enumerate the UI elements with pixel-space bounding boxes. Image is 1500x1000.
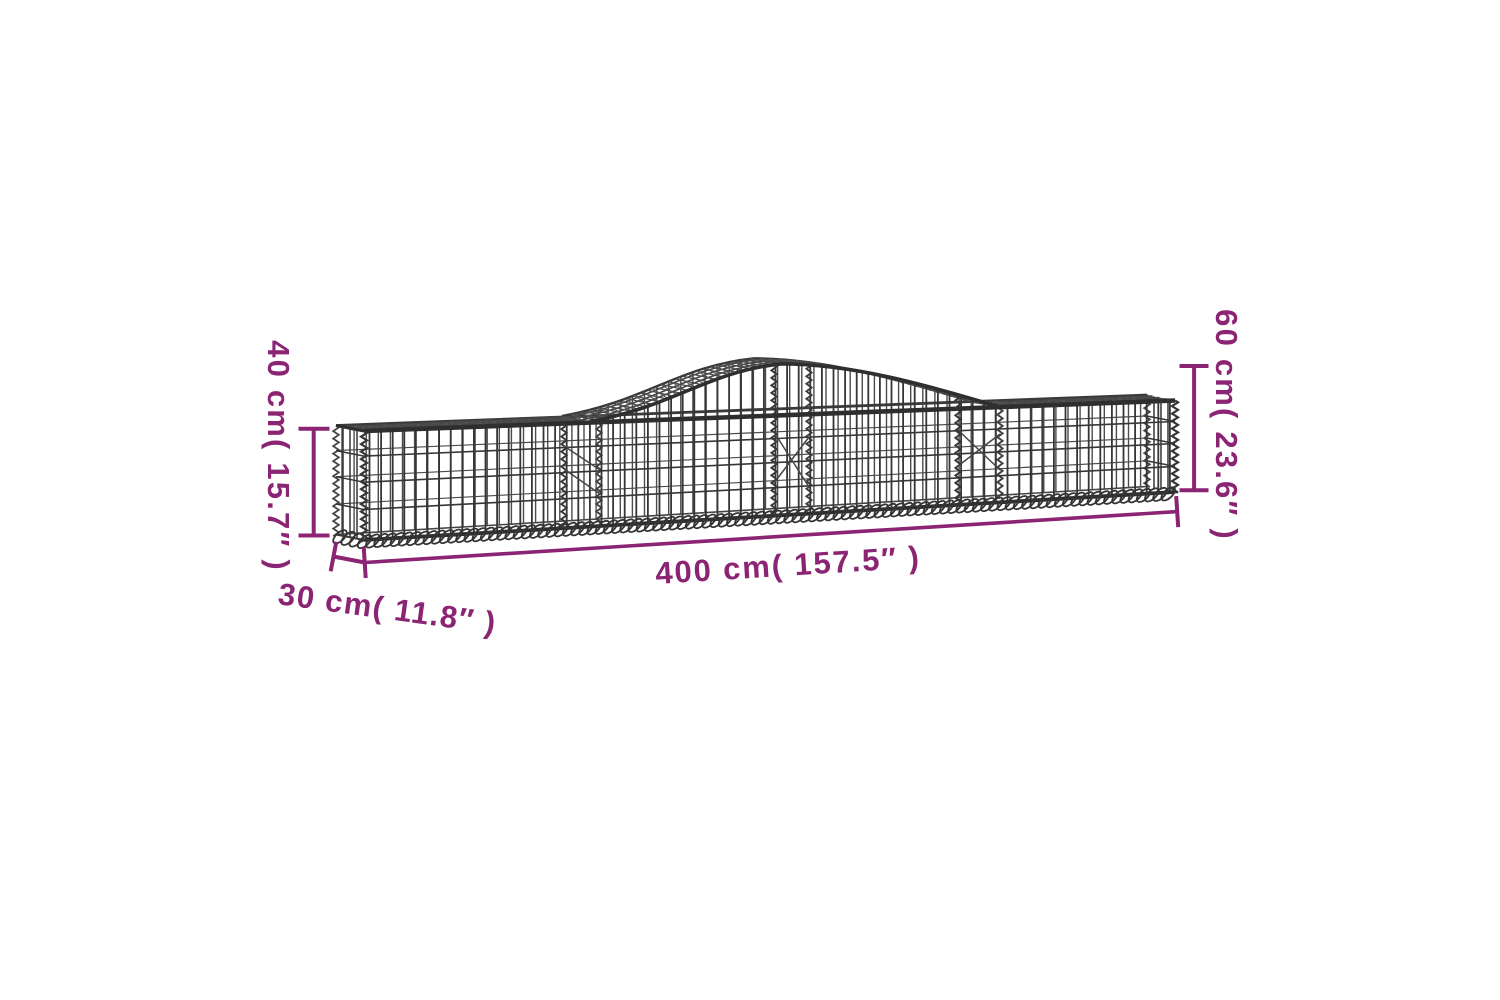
svg-text:60 cm( 23.6″ ): 60 cm( 23.6″ ) <box>1209 309 1244 541</box>
svg-text:40 cm( 15.7″ ): 40 cm( 15.7″ ) <box>261 340 296 572</box>
